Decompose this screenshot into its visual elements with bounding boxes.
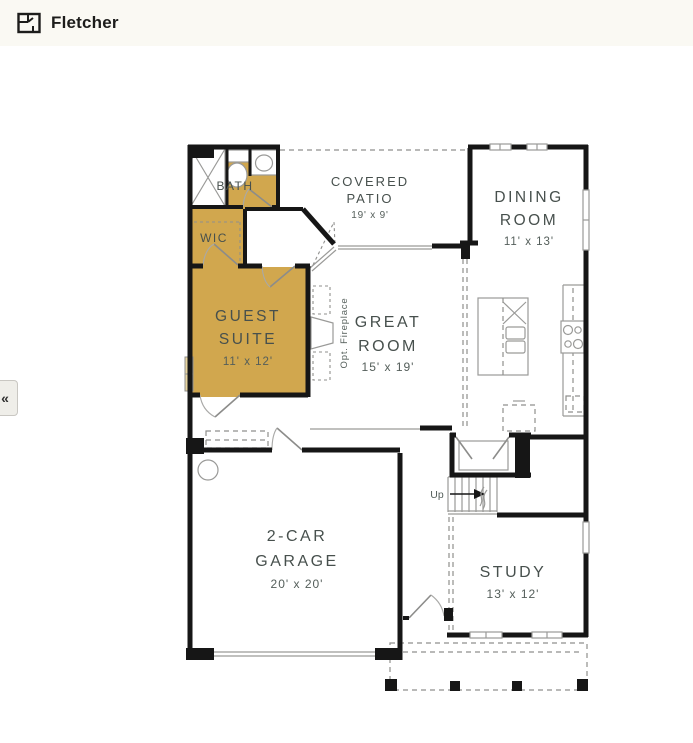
opt-fireplace-label: Opt. Fireplace: [339, 298, 350, 369]
covered-patio-dims: 19' x 9': [351, 210, 388, 221]
covered-patio-label: COVERED: [331, 174, 409, 189]
covered-patio-label2: PATIO: [346, 191, 393, 206]
guest-suite-dims: 11' x 12': [223, 356, 273, 368]
porch-columns: [385, 679, 588, 691]
fireplace: [311, 286, 333, 380]
great-room-dims: 15' x 19': [362, 360, 415, 374]
great-room-label: GREAT: [355, 314, 421, 331]
study-label: STUDY: [480, 564, 547, 581]
dashed-outlines: [194, 150, 587, 690]
garage-dims: 20' x 20': [271, 577, 324, 591]
guest-suite-label: GUEST: [215, 308, 281, 325]
garage-label2: GARAGE: [255, 553, 338, 570]
bath-label: BATH: [216, 179, 253, 193]
floorplan-page: Fletcher «: [0, 0, 693, 743]
stairs-up-label: Up: [430, 489, 444, 501]
dining-room-dims: 11' x 13': [504, 236, 554, 248]
dining-room-label2: ROOM: [500, 212, 558, 229]
stairs: [448, 477, 497, 514]
great-room-label2: ROOM: [358, 338, 418, 355]
study-dims: 13' x 12': [487, 587, 540, 601]
dining-room-label: DINING: [494, 189, 563, 206]
guest-suite-label2: SUITE: [219, 331, 277, 348]
garage-label: 2-CAR: [267, 528, 328, 545]
floorplan-canvas[interactable]: BATH WIC GUEST SUITE 11' x 12' COVERED P…: [0, 0, 693, 743]
wic-label: WIC: [200, 231, 228, 245]
